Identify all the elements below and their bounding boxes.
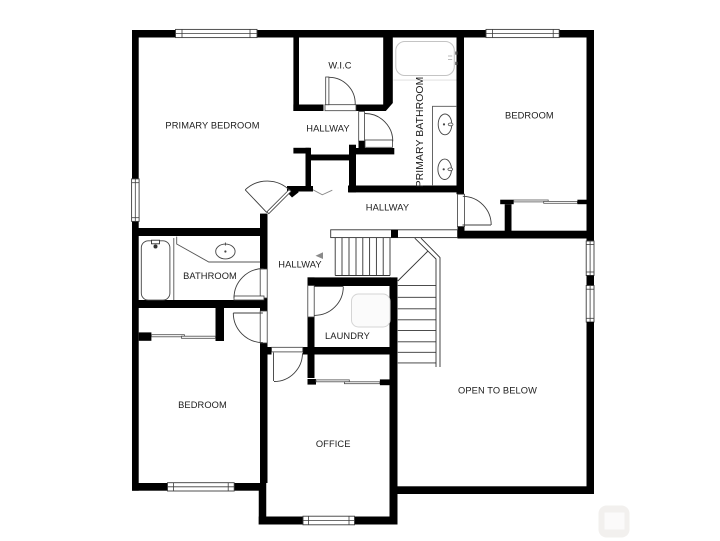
svg-text:PRIMARY BATHROOM: PRIMARY BATHROOM	[415, 77, 426, 188]
svg-text:W.I.C: W.I.C	[328, 60, 351, 70]
svg-text:OFFICE: OFFICE	[316, 439, 351, 449]
svg-text:PRIMARY BEDROOM: PRIMARY BEDROOM	[165, 120, 259, 130]
svg-text:BATHROOM: BATHROOM	[183, 271, 237, 281]
svg-text:BEDROOM: BEDROOM	[505, 110, 554, 120]
svg-text:HALLWAY: HALLWAY	[306, 123, 349, 133]
svg-text:OPEN TO BELOW: OPEN TO BELOW	[458, 385, 537, 395]
svg-text:HALLWAY: HALLWAY	[278, 259, 321, 269]
svg-text:HALLWAY: HALLWAY	[366, 202, 409, 212]
svg-text:BEDROOM: BEDROOM	[178, 400, 227, 410]
svg-text:LAUNDRY: LAUNDRY	[325, 331, 370, 341]
